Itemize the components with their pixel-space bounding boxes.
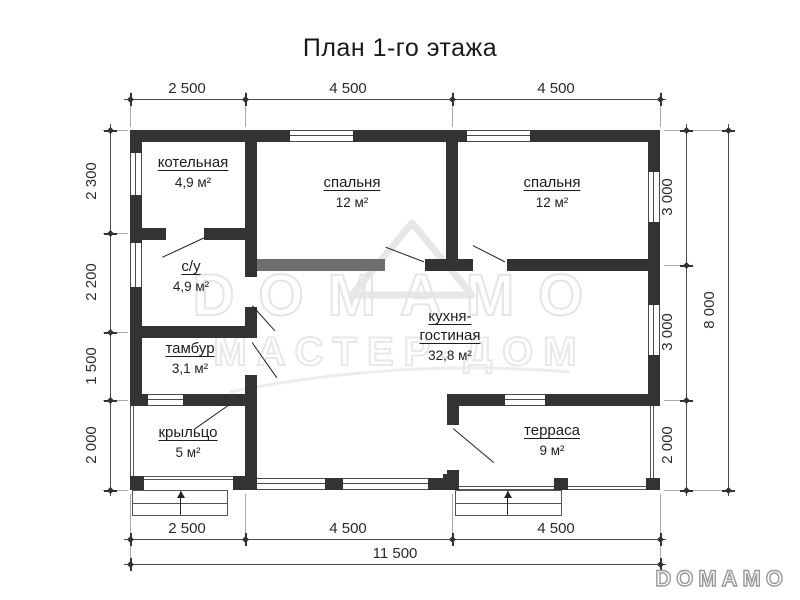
dim-tick <box>104 332 117 334</box>
dim-tick <box>130 93 132 106</box>
dim-top-2: 4 500 <box>308 80 388 97</box>
dim-tick <box>104 490 117 492</box>
dim-top-3: 4 500 <box>516 80 596 97</box>
dim-right-total: 8 000 <box>701 280 721 340</box>
dim-left-3: 1 500 <box>83 336 103 396</box>
dim-tick <box>680 265 693 267</box>
dim-tick <box>104 233 117 235</box>
corner-brand-logo: DOMAMO <box>655 566 788 592</box>
dim-line-top <box>124 99 666 100</box>
dim-tick <box>104 130 117 132</box>
floor-plan-canvas: План 1-го этажа DOMAMO МАСТЕР-ДОМ <box>0 0 800 600</box>
dim-bottom-1: 2 500 <box>147 520 227 537</box>
dim-left-1: 2 300 <box>83 151 103 211</box>
dim-tick <box>660 93 662 106</box>
dim-tick <box>104 400 117 402</box>
dim-line-bottom-outer <box>124 564 666 565</box>
dim-line-left <box>110 124 111 496</box>
dim-tick <box>722 490 735 492</box>
dim-tick <box>660 533 662 546</box>
dim-tick <box>722 130 735 132</box>
dim-tick <box>680 490 693 492</box>
dim-left-4: 2 000 <box>83 415 103 475</box>
dim-tick <box>130 533 132 546</box>
dim-right-1: 3 000 <box>659 167 679 227</box>
dim-line-right-inner <box>686 124 687 496</box>
dim-bottom-total: 11 500 <box>355 545 435 562</box>
dim-tick <box>680 130 693 132</box>
dim-tick <box>452 93 454 106</box>
dim-bottom-3: 4 500 <box>516 520 596 537</box>
dim-line-bottom-inner <box>124 539 666 540</box>
dim-top-1: 2 500 <box>147 80 227 97</box>
dim-tick <box>680 400 693 402</box>
dim-tick <box>245 533 247 546</box>
dim-right-3: 2 000 <box>659 415 679 475</box>
dim-left-2: 2 200 <box>83 252 103 312</box>
dim-tick <box>452 533 454 546</box>
dim-right-2: 3 000 <box>659 302 679 362</box>
dim-tick <box>245 93 247 106</box>
dimensions-layer: 2 500 4 500 4 500 2 300 2 200 1 500 2 00… <box>0 0 800 600</box>
dim-bottom-2: 4 500 <box>308 520 388 537</box>
dim-tick <box>130 558 132 571</box>
dim-line-right-outer <box>728 124 729 496</box>
